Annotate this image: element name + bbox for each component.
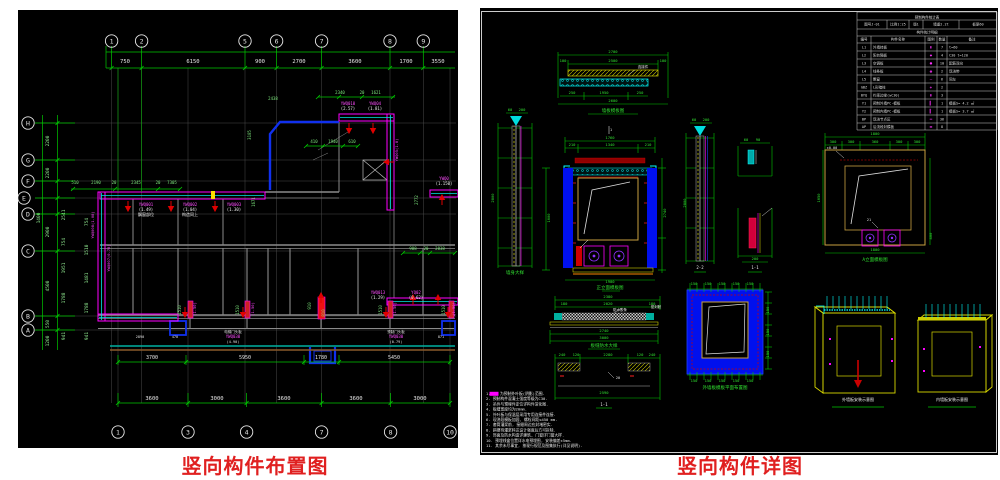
- svg-text:11. 其余未尽事宜, 按现行规范及图集执行(详见说明).: 11. 其余未尽事宜, 按现行规范及图集执行(详见说明).: [486, 443, 583, 448]
- grout-funnel-icon: [694, 126, 706, 136]
- svg-text:2438: 2438: [268, 96, 278, 101]
- wall-section-2: [686, 123, 714, 272]
- svg-text:(1.50): (1.50): [451, 302, 456, 316]
- svg-text:10: 10: [940, 61, 944, 65]
- grout-funnel-icon: [510, 116, 522, 126]
- formwork-plan-detail: [687, 283, 772, 380]
- svg-text:3000: 3000: [413, 396, 426, 402]
- svg-text:L2: L2: [862, 53, 866, 57]
- svg-text:电梯门头板: 电梯门头板: [224, 329, 242, 334]
- svg-text:100: 100: [660, 58, 668, 63]
- detail-sheet-panel: 预制构件统计表构件统计明细编号构件名称图例数量备注图号J-01比例1:25版1墙…: [480, 8, 998, 455]
- svg-text:1780: 1780: [315, 355, 327, 361]
- svg-text:连接件: 连接件: [638, 64, 649, 69]
- svg-text:配筋双向: 配筋双向: [949, 60, 963, 65]
- window-diagonal: [706, 304, 745, 354]
- notes-text: 1.为预制外叶板(阴影)范围.2. 预制构件混凝土强度等级为C30.3. 吊件与…: [486, 391, 583, 448]
- svg-text:L形暗柱: L形暗柱: [873, 84, 886, 89]
- svg-text:1788: 1788: [84, 302, 90, 313]
- svg-text:2700: 2700: [292, 59, 305, 65]
- svg-text:3000: 3000: [210, 396, 223, 402]
- svg-text:AP: AP: [862, 125, 866, 129]
- svg-text:GBZ: GBZ: [861, 85, 867, 89]
- svg-text:150: 150: [719, 378, 727, 383]
- svg-text:5950: 5950: [239, 355, 251, 361]
- svg-text:—: —: [930, 76, 933, 81]
- svg-text:F: F: [26, 177, 30, 185]
- svg-text:1951: 1951: [61, 262, 67, 273]
- svg-text:510: 510: [71, 180, 79, 185]
- axis-bubbles-bottom: 1347810: [112, 426, 456, 438]
- svg-text:6: 6: [275, 37, 279, 45]
- svg-text:3105: 3105: [247, 130, 252, 140]
- svg-text:正立面模板图: 正立面模板图: [597, 284, 624, 291]
- table-text-left: 外墙挂板阳台隔板空调板线条板飘窗L形暗柱约束边缘(≥C30)预制外墙PC·模板预…: [873, 44, 975, 129]
- svg-text:(1.150): (1.150): [436, 181, 453, 186]
- svg-text:1621: 1621: [371, 90, 381, 95]
- svg-text:180: 180: [561, 301, 569, 306]
- svg-text:现浇带: 现浇带: [949, 68, 960, 73]
- svg-text:5450: 5450: [388, 355, 400, 361]
- svg-text:Y2: Y2: [862, 109, 866, 113]
- table-symbols: ▮◆●◉—✚▮▍▍━▬: [929, 44, 933, 129]
- svg-text:1940: 1940: [328, 139, 338, 144]
- svg-text:2700: 2700: [608, 49, 618, 54]
- svg-text:150: 150: [719, 281, 727, 286]
- svg-text:1: 1: [941, 109, 943, 113]
- svg-text:飘窗: 飘窗: [873, 76, 881, 81]
- svg-text:1671: 1671: [251, 197, 256, 207]
- svg-text:构件统计明细: 构件统计明细: [917, 30, 938, 35]
- svg-text:8: 8: [941, 125, 943, 129]
- svg-text:L3: L3: [862, 61, 866, 65]
- svg-text:750: 750: [120, 59, 130, 65]
- svg-text:7305: 7305: [167, 180, 177, 185]
- svg-text:1800: 1800: [870, 131, 880, 136]
- svg-text:YWQ030: YWQ030: [226, 334, 241, 339]
- window-diagonal: [851, 169, 908, 224]
- svg-text:2800: 2800: [682, 198, 687, 208]
- svg-text:Y1: Y1: [862, 101, 866, 105]
- svg-text:240: 240: [649, 352, 657, 357]
- small-dimensions-rotated: 3105167127729108101510151015101510: [177, 130, 446, 317]
- svg-text:2740: 2740: [599, 328, 609, 333]
- svg-text:1400: 1400: [36, 212, 42, 223]
- svg-text:2-2: 2-2: [696, 265, 704, 270]
- svg-text:21: 21: [867, 218, 871, 222]
- svg-text:210: 210: [569, 142, 577, 147]
- blue-elements: [170, 122, 455, 363]
- bottom-dimensions: 36003000360036003000: [145, 396, 426, 402]
- svg-text:L5: L5: [862, 77, 866, 81]
- svg-text:A立面模板图: A立面模板图: [862, 256, 888, 263]
- svg-text:941: 941: [61, 332, 67, 340]
- svg-text:60: 60: [744, 137, 749, 142]
- svg-text:(1.81): (1.81): [368, 106, 382, 111]
- wall-tags-rotated: YWQ008(1.08)YWQ007(0.78)YWQ05(1.8)(1.50)…: [90, 139, 456, 316]
- svg-text:470: 470: [172, 335, 178, 339]
- svg-text:120: 120: [573, 352, 581, 357]
- svg-text:构造同上: 构造同上: [182, 211, 198, 217]
- mid-dimensions: 3700595017805450: [146, 355, 400, 361]
- detail-sheet-drawing: 预制构件统计表构件统计明细编号构件名称图例数量备注图号J-01比例1:25版1墙…: [480, 8, 998, 455]
- svg-text:(4.90): (4.90): [227, 340, 240, 344]
- svg-text:预制内墙PC·模板: 预制内墙PC·模板: [873, 108, 901, 113]
- svg-text:(2.57): (2.57): [341, 106, 355, 111]
- svg-text:4: 4: [245, 428, 249, 436]
- svg-text:2200: 2200: [45, 167, 51, 178]
- svg-text:200: 200: [703, 117, 711, 122]
- svg-text:2: 2: [140, 37, 144, 45]
- svg-text:3600: 3600: [277, 396, 290, 402]
- svg-text:图例: 图例: [928, 37, 936, 42]
- elevation-detail-main: [542, 126, 666, 291]
- caption-layout-plan-text: 竖向构件布置图: [182, 454, 329, 478]
- svg-text:3000: 3000: [599, 335, 609, 340]
- left-dimensions: 2200220029004500550120025417541951178894…: [36, 135, 90, 346]
- layout-plan-drawing: 75061509002700360017003550 3600300036003…: [18, 10, 458, 448]
- svg-text:250: 250: [637, 90, 645, 95]
- svg-text:1-1: 1-1: [751, 265, 759, 270]
- svg-text:3: 3: [941, 93, 943, 97]
- stair-symbol: [363, 160, 387, 180]
- svg-text:1200: 1200: [45, 335, 51, 346]
- svg-text:150: 150: [691, 378, 699, 383]
- svg-text:●: ●: [930, 60, 933, 65]
- svg-text:▍: ▍: [929, 100, 932, 105]
- svg-text:1: 1: [941, 101, 943, 105]
- svg-text:2: 2: [941, 69, 943, 73]
- svg-text:G: G: [26, 156, 30, 164]
- svg-text:7: 7: [320, 37, 324, 45]
- svg-text:后浇段封模板: 后浇段封模板: [873, 124, 894, 129]
- axis-bubbles-top: 1256789: [105, 35, 429, 47]
- svg-text:✚: ✚: [930, 84, 933, 89]
- svg-text:1: 1: [110, 37, 114, 45]
- svg-text:密封胶: 密封胶: [651, 304, 662, 309]
- svg-text:120: 120: [637, 352, 645, 357]
- svg-text:1: 1: [610, 128, 612, 132]
- jamb-right: [647, 168, 657, 268]
- svg-text:1510: 1510: [441, 305, 446, 315]
- svg-text:预制门头板: 预制门头板: [387, 329, 405, 334]
- svg-text:A: A: [26, 326, 30, 334]
- svg-text:内墙板安装示意图: 内墙板安装示意图: [936, 396, 968, 402]
- svg-text:防水胶条: 防水胶条: [613, 307, 627, 312]
- elevation-detail-a: [823, 133, 930, 253]
- svg-text:1788: 1788: [61, 292, 67, 303]
- svg-text:预制外墙PC·模板: 预制外墙PC·模板: [873, 100, 901, 105]
- svg-text:3: 3: [186, 428, 190, 436]
- svg-text:7: 7: [941, 45, 943, 49]
- svg-text:(1.50): (1.50): [392, 302, 397, 316]
- svg-text:2340: 2340: [335, 90, 345, 95]
- svg-text:988: 988: [409, 246, 417, 251]
- svg-text:编号: 编号: [861, 37, 869, 42]
- svg-text:1-1: 1-1: [600, 402, 608, 407]
- svg-text:400: 400: [928, 232, 933, 240]
- svg-text:1900: 1900: [605, 279, 615, 284]
- svg-text:2345: 2345: [131, 180, 141, 185]
- svg-text:阳台隔板: 阳台隔板: [873, 52, 887, 57]
- svg-text:构件名称: 构件名称: [891, 37, 905, 42]
- horizontal-joint-section: [555, 354, 660, 408]
- svg-text:410: 410: [310, 139, 318, 144]
- svg-text:610: 610: [348, 139, 356, 144]
- svg-text:◆: ◆: [930, 52, 933, 57]
- svg-text:t=60: t=60: [949, 45, 957, 49]
- svg-text:2600: 2600: [608, 98, 618, 103]
- svg-text:941: 941: [84, 332, 90, 340]
- svg-text:墙身大样: 墙身大样: [506, 269, 524, 276]
- svg-text:150: 150: [691, 281, 699, 286]
- wall-section-1: [498, 113, 532, 268]
- svg-text:(0.79): (0.79): [390, 340, 403, 344]
- svg-text:2590: 2590: [599, 390, 609, 395]
- svg-text:300: 300: [830, 139, 838, 144]
- svg-text:300: 300: [848, 139, 856, 144]
- svg-text:150: 150: [765, 350, 770, 358]
- layout-plan-panel: 75061509002700360017003550 3600300036003…: [18, 10, 458, 448]
- svg-text:C: C: [26, 247, 30, 255]
- svg-text:(1.30): (1.30): [227, 207, 241, 212]
- svg-text:━: ━: [929, 116, 933, 121]
- notes-block: [490, 392, 499, 396]
- svg-text:D: D: [26, 210, 30, 218]
- svg-text:B: B: [26, 312, 30, 320]
- svg-text:20: 20: [424, 246, 429, 251]
- svg-text:外墙板模板平面布置图: 外墙板模板平面布置图: [703, 384, 748, 391]
- svg-text:YWQ05(1.8): YWQ05(1.8): [394, 139, 399, 162]
- svg-text:2838: 2838: [435, 246, 445, 251]
- svg-text:1950: 1950: [599, 90, 609, 95]
- svg-text:100: 100: [560, 58, 568, 63]
- svg-text:8: 8: [388, 37, 392, 45]
- svg-text:1600: 1600: [546, 213, 551, 223]
- wall-tags-magenta: YWQ001(1.49)飘窗部位YWQ002(1.04)构造同上YWQ003(1…: [138, 101, 452, 339]
- svg-text:(1.50): (1.50): [250, 302, 255, 316]
- axis-bubbles-rows: HGFEDCBA: [18, 117, 34, 336]
- svg-text:150: 150: [705, 281, 713, 286]
- svg-text:3700: 3700: [146, 355, 158, 361]
- svg-text:(1.50): (1.50): [192, 302, 197, 316]
- panel-3d-exterior: [815, 296, 895, 407]
- svg-text:墙重2.2t: 墙重2.2t: [933, 22, 948, 27]
- top-dimensions: 75061509002700360017003550: [120, 59, 445, 65]
- svg-text:1: 1: [116, 428, 120, 436]
- svg-text:外墙板安装示意图: 外墙板安装示意图: [842, 396, 874, 402]
- svg-text:754: 754: [61, 238, 67, 246]
- svg-text:1510: 1510: [235, 305, 240, 315]
- svg-text:2740: 2740: [662, 208, 667, 218]
- svg-text:6: 6: [941, 77, 943, 81]
- svg-text:L1: L1: [862, 45, 866, 49]
- svg-text:3600: 3600: [349, 396, 362, 402]
- svg-text:图号J-01: 图号J-01: [864, 22, 879, 27]
- svg-text:现浇节点区: 现浇节点区: [873, 116, 891, 121]
- svg-text:(1.29): (1.29): [371, 295, 385, 300]
- svg-text:线条板: 线条板: [873, 68, 884, 73]
- svg-text:▮: ▮: [930, 44, 932, 49]
- svg-text:同左: 同左: [949, 76, 957, 81]
- svg-text:2280: 2280: [603, 352, 613, 357]
- svg-text:2380: 2380: [603, 294, 613, 299]
- svg-text:E: E: [22, 194, 26, 202]
- svg-text:±0.00: ±0.00: [827, 146, 838, 150]
- svg-text:L4: L4: [862, 69, 866, 73]
- svg-text:240: 240: [559, 352, 567, 357]
- svg-text:YWQ008(1.08): YWQ008(1.08): [90, 211, 95, 238]
- svg-text:3550: 3550: [431, 59, 444, 65]
- svg-text:200: 200: [752, 256, 760, 261]
- svg-text:空调板: 空调板: [873, 60, 884, 65]
- svg-text:4500: 4500: [45, 280, 51, 291]
- svg-text:板缝防水大样: 板缝防水大样: [591, 342, 618, 349]
- svg-text:871: 871: [438, 335, 444, 339]
- svg-text:预制构件统计表: 预制构件统计表: [915, 15, 940, 20]
- svg-text:2500: 2500: [608, 58, 618, 63]
- svg-text:▮: ▮: [930, 92, 932, 97]
- panel-3d-interior: [918, 304, 992, 407]
- svg-text:360: 360: [872, 139, 880, 144]
- svg-text:飘窗部位: 飘窗部位: [138, 211, 154, 217]
- svg-text:900: 900: [255, 59, 265, 65]
- svg-text:YWQ007(0.78): YWQ007(0.78): [106, 244, 111, 271]
- svg-text:版1: 版1: [913, 22, 919, 27]
- svg-text:2200: 2200: [45, 135, 51, 146]
- svg-text:2772: 2772: [414, 195, 419, 205]
- svg-text:20: 20: [360, 90, 365, 95]
- svg-text:4: 4: [941, 53, 943, 57]
- walls-magenta: [98, 114, 458, 321]
- svg-text:210: 210: [645, 142, 653, 147]
- svg-text:外墙挂板: 外墙挂板: [873, 44, 887, 49]
- svg-text:150: 150: [705, 378, 713, 383]
- caption-layout-plan: 竖向构件布置图: [150, 450, 360, 479]
- svg-text:3600: 3600: [145, 396, 158, 402]
- svg-text:约束边缘(≥C30): 约束边缘(≥C30): [873, 92, 900, 97]
- svg-text:550: 550: [45, 320, 51, 328]
- jamb-left: [563, 168, 573, 268]
- dowel-bars: [926, 304, 980, 318]
- svg-text:20: 20: [616, 376, 620, 380]
- svg-text:150: 150: [765, 306, 770, 314]
- svg-text:1340: 1340: [605, 142, 615, 147]
- svg-text:7: 7: [320, 428, 324, 436]
- svg-text:(0.62): (0.62): [409, 295, 423, 300]
- svg-text:2190: 2190: [91, 180, 101, 185]
- svg-text:1510: 1510: [177, 305, 182, 315]
- svg-text:▍: ▍: [929, 108, 932, 113]
- svg-text:1510: 1510: [378, 305, 383, 315]
- svg-text:模板S= 4.2 ㎡: 模板S= 4.2 ㎡: [949, 100, 975, 105]
- svg-text:10: 10: [446, 428, 454, 436]
- svg-text:1700: 1700: [399, 59, 412, 65]
- svg-text:250: 250: [569, 90, 577, 95]
- caption-detail-sheet-text: 竖向构件详图: [677, 454, 803, 478]
- svg-text:◉: ◉: [930, 68, 933, 73]
- svg-text:60: 60: [692, 117, 697, 122]
- svg-text:2541: 2541: [61, 209, 67, 220]
- svg-text:150: 150: [747, 378, 755, 383]
- svg-text:BP: BP: [862, 117, 866, 121]
- svg-text:1800: 1800: [870, 247, 880, 252]
- svg-text:300: 300: [896, 139, 904, 144]
- svg-text:1510: 1510: [84, 244, 90, 255]
- svg-text:810: 810: [321, 309, 326, 317]
- detail-labels-white: 2-21-11-1外墙板安装示意图内墙板安装示意图: [600, 265, 968, 407]
- svg-text:910: 910: [307, 302, 312, 310]
- svg-text:2: 2: [941, 85, 943, 89]
- svg-text:3600: 3600: [348, 59, 361, 65]
- svg-text:300: 300: [914, 139, 922, 144]
- svg-text:150: 150: [765, 328, 770, 336]
- svg-text:YWQ030: YWQ030: [389, 334, 404, 339]
- svg-text:2800: 2800: [490, 193, 495, 203]
- svg-text:备注: 备注: [969, 37, 977, 42]
- svg-text:5: 5: [243, 37, 247, 45]
- red-arrows: [126, 123, 451, 317]
- svg-text:C30 t=120: C30 t=120: [949, 53, 968, 57]
- svg-text:▬: ▬: [930, 124, 933, 129]
- svg-text:1650: 1650: [816, 193, 821, 203]
- svg-text:墙板模板图: 墙板模板图: [602, 107, 625, 114]
- svg-text:150: 150: [733, 281, 741, 286]
- svg-text:H: H: [26, 119, 30, 127]
- svg-text:2020: 2020: [603, 301, 613, 306]
- svg-text:20: 20: [156, 180, 161, 185]
- svg-text:1760: 1760: [605, 135, 615, 140]
- svg-text:90: 90: [756, 137, 761, 142]
- svg-text:36: 36: [940, 117, 944, 121]
- balcony-edge: [110, 346, 455, 350]
- svg-text:60: 60: [508, 107, 513, 112]
- svg-text:比例1:25: 比例1:25: [890, 22, 905, 27]
- svg-text:2890: 2890: [136, 335, 144, 339]
- svg-text:20: 20: [112, 180, 117, 185]
- svg-text:9: 9: [421, 37, 425, 45]
- svg-text:模板S= 3.7 ㎡: 模板S= 3.7 ㎡: [949, 108, 975, 113]
- svg-text:200: 200: [519, 107, 527, 112]
- svg-text:BYQ: BYQ: [861, 93, 867, 97]
- svg-text:8: 8: [389, 428, 393, 436]
- legend-swatch: [490, 392, 499, 396]
- svg-text:数量: 数量: [939, 37, 947, 42]
- svg-text:2900: 2900: [45, 226, 51, 237]
- caption-detail-sheet: 竖向构件详图: [645, 450, 835, 479]
- joint-sections: [738, 143, 772, 272]
- svg-text:150: 150: [733, 378, 741, 383]
- svg-text:150: 150: [747, 281, 755, 286]
- wall-core-cyan: [99, 115, 457, 320]
- svg-text:1481: 1481: [84, 272, 90, 283]
- svg-text:6150: 6150: [186, 59, 199, 65]
- svg-text:板厚60: 板厚60: [972, 22, 983, 27]
